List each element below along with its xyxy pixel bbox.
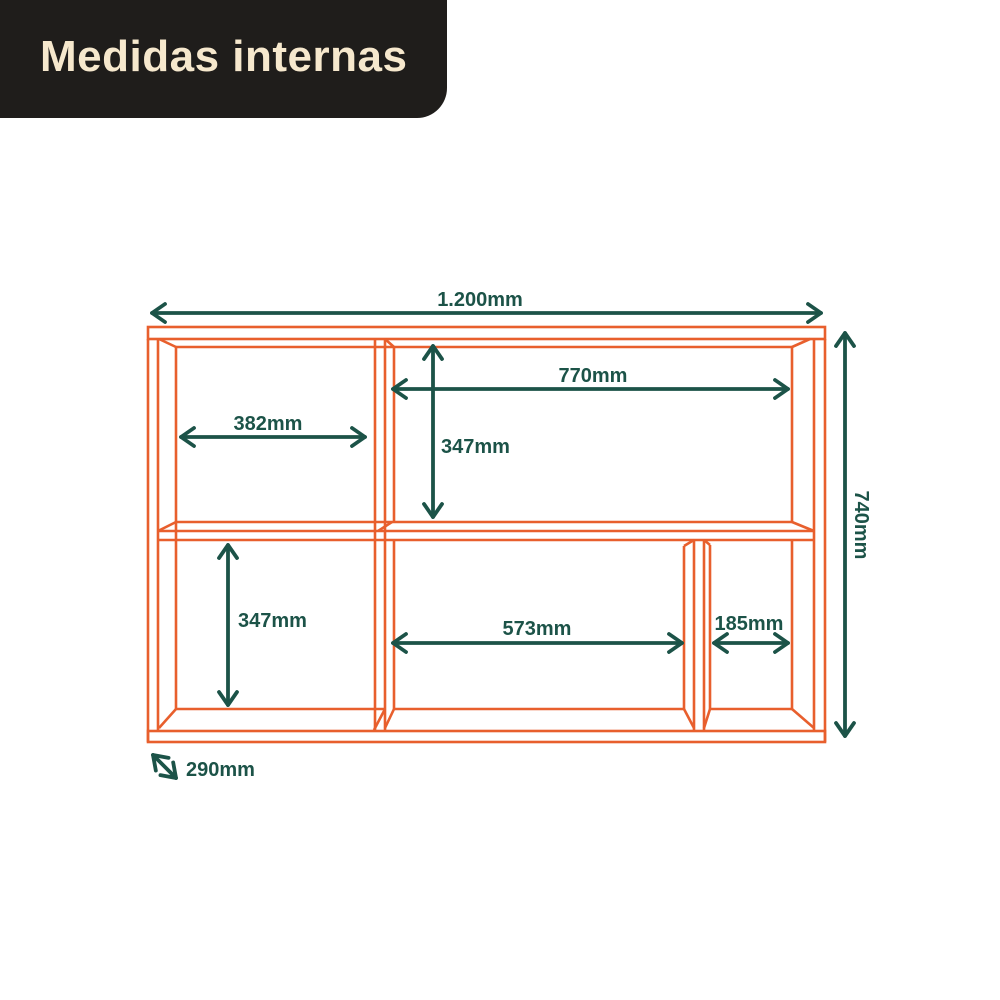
dim-total-width: 1.200mm <box>152 289 821 322</box>
bottom-panel <box>148 709 825 742</box>
dim-depth: 290mm <box>147 749 255 785</box>
dim-bottom-left-height: 347mm <box>219 545 307 705</box>
header-banner: Medidas internas <box>0 0 447 118</box>
furniture-diagram: 1.200mm 740mm 382mm 770mm <box>0 0 1000 1000</box>
dim-top-right-width-label: 770mm <box>559 365 628 387</box>
dim-bottom-middle-width-label: 573mm <box>503 618 572 640</box>
vertical-divider-top <box>375 339 394 731</box>
dim-depth-label: 290mm <box>186 759 255 781</box>
middle-shelf <box>158 522 814 540</box>
top-panel <box>148 327 825 347</box>
dim-bottom-middle-width: 573mm <box>393 618 682 652</box>
vertical-divider-bottom <box>684 540 710 731</box>
dim-top-right-width: 770mm <box>393 365 788 398</box>
dim-top-left-width: 382mm <box>181 413 365 446</box>
dim-total-height: 740mm <box>836 333 872 736</box>
dim-top-left-width-label: 382mm <box>234 413 303 435</box>
page: Medidas internas <box>0 0 1000 1000</box>
page-title: Medidas internas <box>40 32 407 82</box>
dim-bottom-right-width: 185mm <box>714 613 788 652</box>
dim-bottom-right-width-label: 185mm <box>715 613 784 635</box>
dim-total-width-label: 1.200mm <box>437 289 523 311</box>
dim-top-right-height-label: 347mm <box>441 436 510 458</box>
dim-top-right-height: 347mm <box>424 346 510 517</box>
dim-bottom-left-height-label: 347mm <box>238 610 307 632</box>
dim-total-height-label: 740mm <box>850 491 872 560</box>
